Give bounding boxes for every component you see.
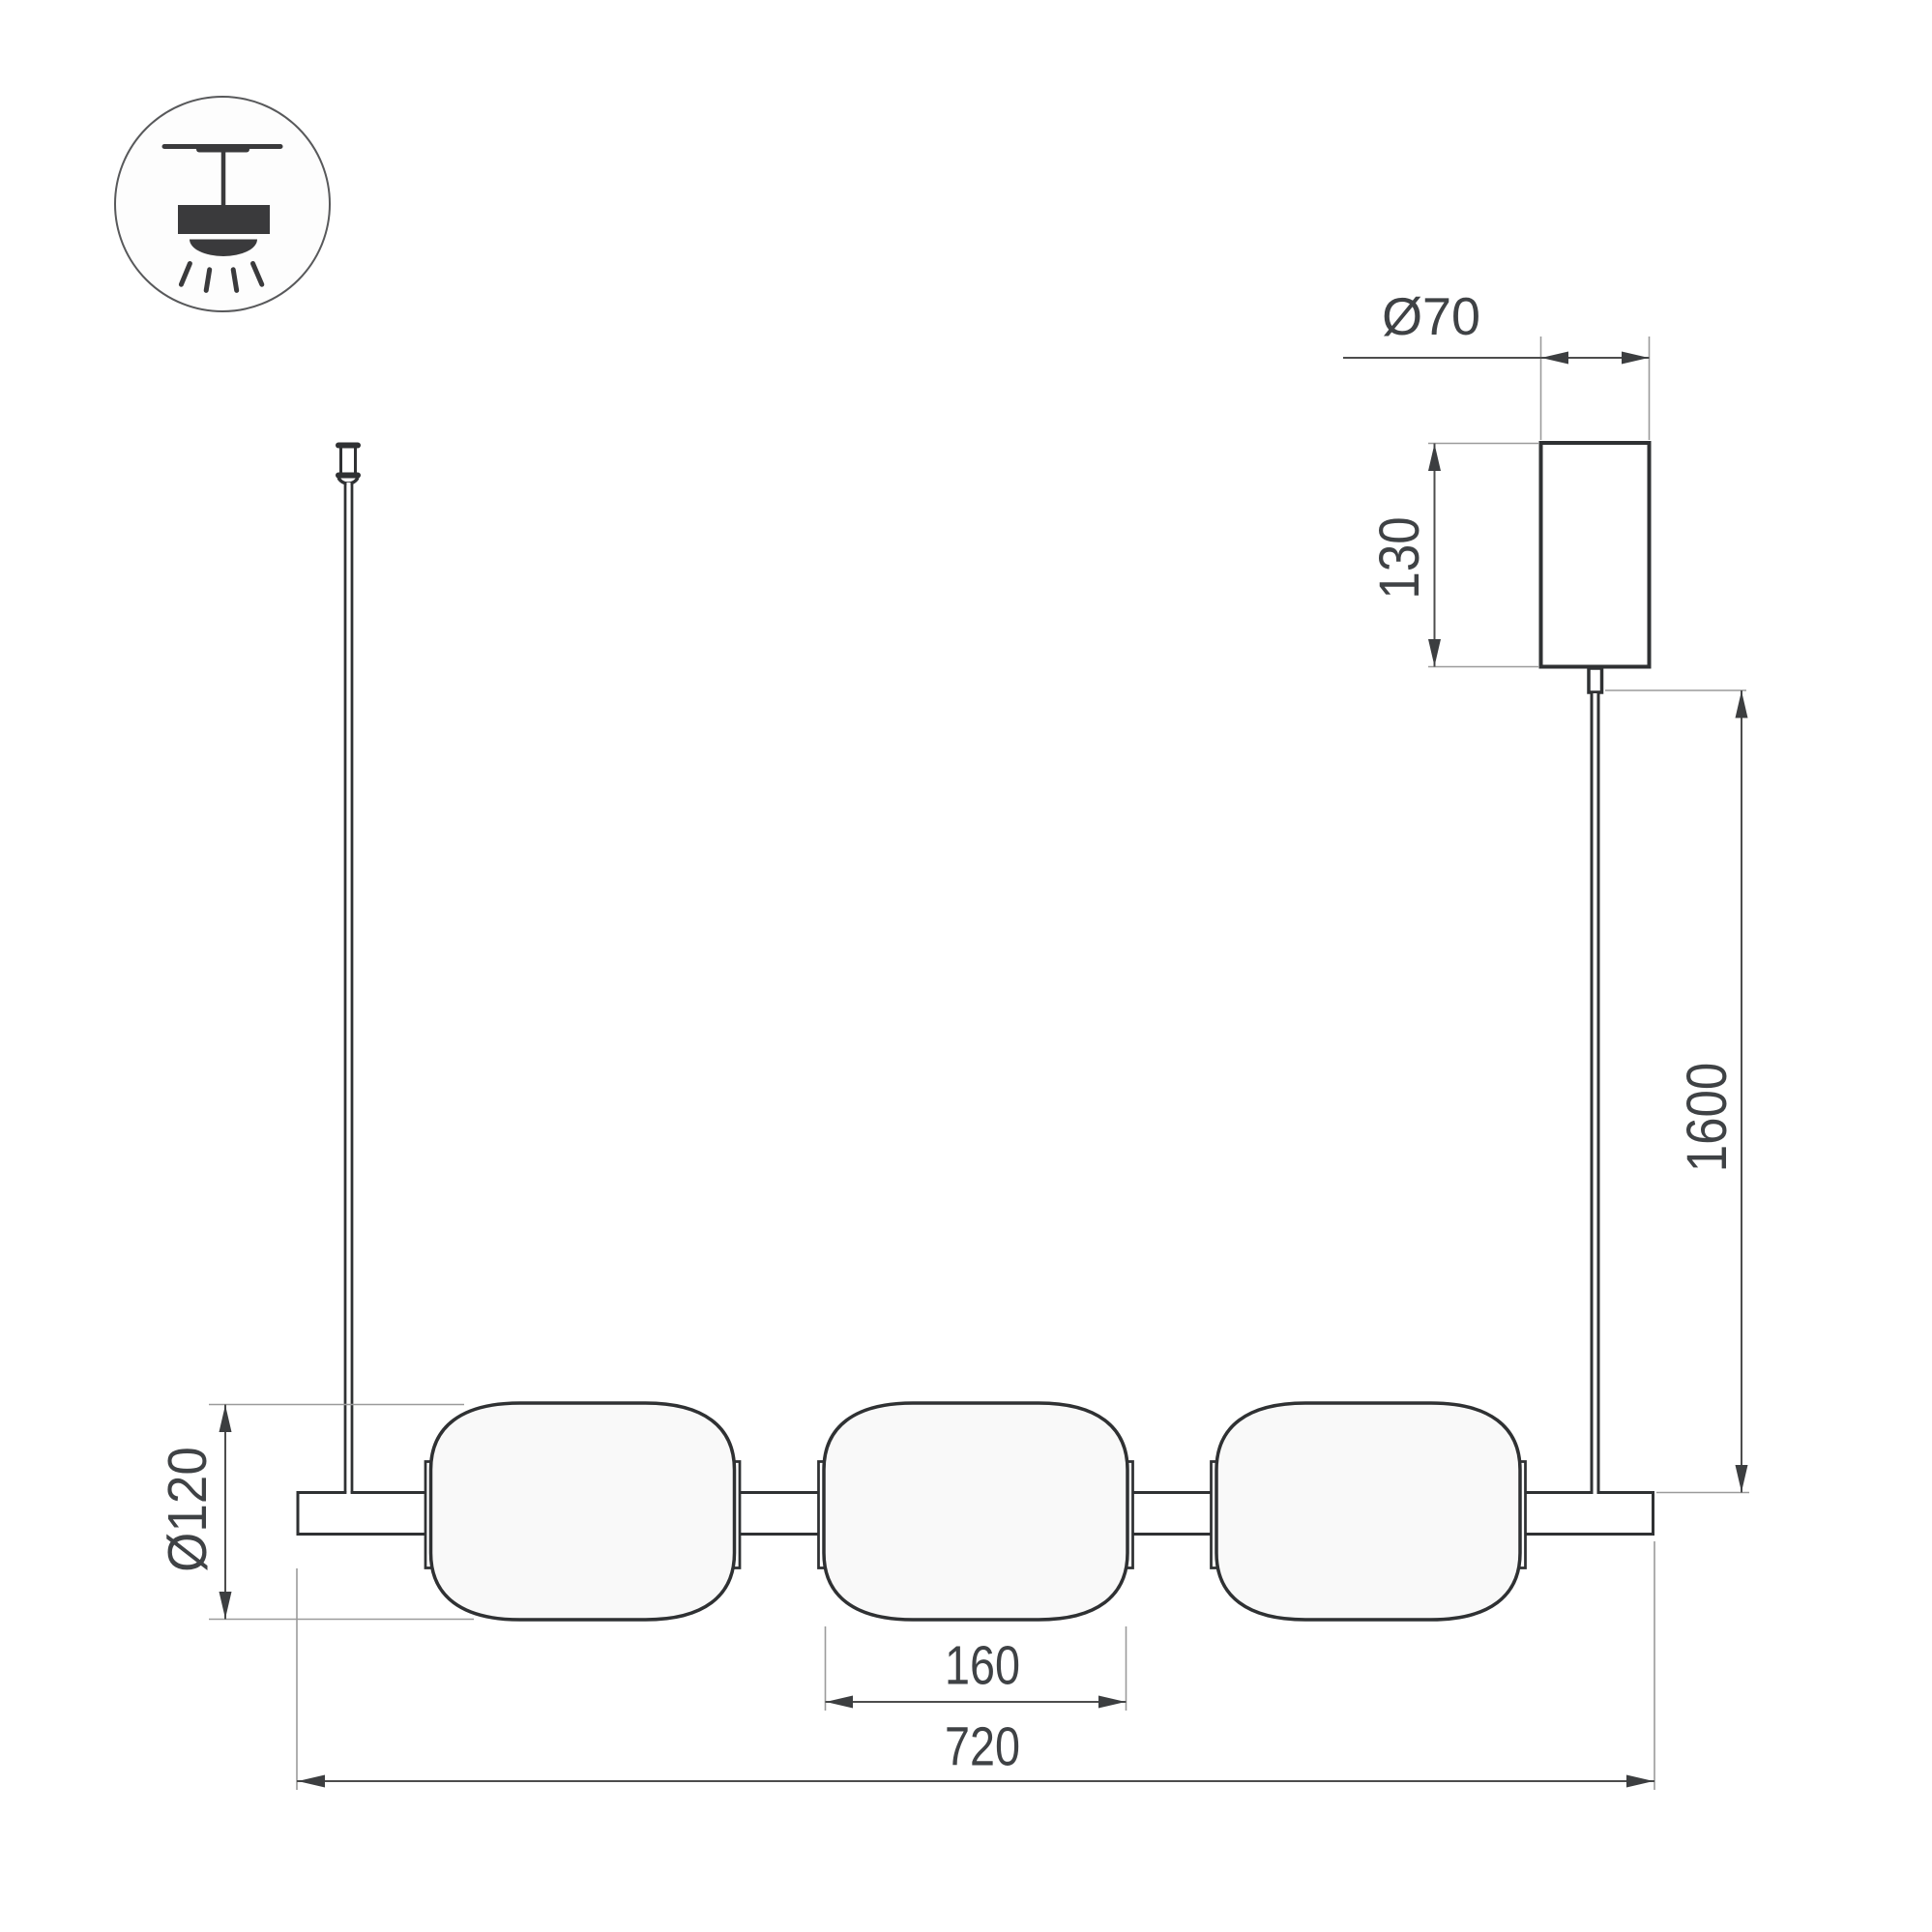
svg-text:1600: 1600 (1676, 1063, 1739, 1173)
svg-text:Ø120: Ø120 (156, 1447, 218, 1572)
svg-text:720: 720 (945, 1716, 1020, 1777)
svg-text:Ø70: Ø70 (1382, 287, 1480, 347)
svg-text:130: 130 (1368, 516, 1431, 599)
svg-text:160: 160 (945, 1635, 1020, 1696)
